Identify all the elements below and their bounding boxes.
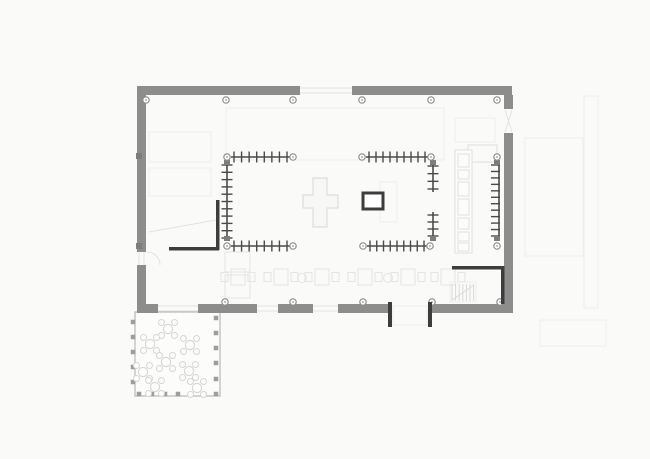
terrace-chair (157, 353, 163, 359)
outer-wall (137, 86, 300, 95)
outer-wall (137, 265, 146, 313)
terrace-chair (201, 392, 207, 398)
terrace-chair (146, 391, 152, 397)
terrace-chair (170, 353, 176, 359)
terrace-post (214, 316, 219, 321)
terrace-table (150, 382, 159, 391)
column-center-dot (496, 156, 498, 158)
terrace-post (214, 346, 219, 351)
wall-block (224, 236, 230, 241)
terrace-post (176, 392, 181, 397)
column-center-dot (225, 99, 227, 101)
terrace-chair (180, 362, 186, 368)
terrace-chair (188, 379, 194, 385)
column-center-dot (224, 301, 226, 303)
terrace-table (163, 324, 172, 333)
terrace-table (184, 366, 193, 375)
outer-wall (278, 304, 313, 313)
outer-wall (198, 304, 257, 313)
terrace-chair (159, 320, 165, 326)
terrace-chair (157, 366, 163, 372)
interior-wall (388, 302, 392, 327)
drawing-background (0, 0, 650, 459)
terrace-chair (194, 336, 200, 342)
outer-wall (352, 86, 512, 95)
column-center-dot (226, 156, 228, 158)
terrace-chair (188, 392, 194, 398)
terrace-chair (181, 349, 187, 355)
terrace-chair (134, 376, 140, 382)
page-background (0, 0, 650, 459)
terrace-chair (193, 362, 199, 368)
terrace-post (214, 331, 219, 336)
column-center-dot (361, 99, 363, 101)
terrace-post (131, 320, 136, 325)
terrace-post (137, 392, 142, 397)
terrace-post (214, 392, 219, 397)
terrace-chair (181, 336, 187, 342)
column-center-dot (496, 245, 498, 247)
interior-wall (428, 302, 432, 327)
outer-wall (504, 133, 513, 313)
column-center-dot (362, 245, 364, 247)
terrace-chair (159, 391, 165, 397)
outer-wall (504, 95, 513, 109)
terrace-post (131, 335, 136, 340)
terrace-table (145, 339, 154, 348)
terrace-chair (154, 335, 160, 341)
stove (363, 193, 383, 209)
column-center-dot (496, 99, 498, 101)
interior-wall (452, 266, 504, 270)
wall-block (136, 153, 142, 159)
terrace-chair (170, 366, 176, 372)
terrace-chair (194, 349, 200, 355)
terrace-table (138, 367, 147, 376)
terrace-table (192, 383, 201, 392)
outer-wall (137, 86, 146, 252)
column-center-dot (430, 99, 432, 101)
column-center-dot (292, 99, 294, 101)
terrace-chair (201, 379, 207, 385)
column-center-dot (430, 156, 432, 158)
terrace-chair (134, 363, 140, 369)
terrace-chair (172, 320, 178, 326)
wall-block (430, 236, 436, 241)
column-center-dot (362, 301, 364, 303)
terrace-post (214, 377, 219, 382)
floor-plan-drawing (0, 0, 650, 459)
terrace-chair (147, 363, 153, 369)
column-center-dot (145, 99, 147, 101)
wall-block (136, 243, 142, 249)
interior-wall (216, 200, 220, 250)
interior-wall (501, 266, 505, 304)
column-center-dot (292, 156, 294, 158)
terrace-table (161, 357, 170, 366)
terrace-post (214, 361, 219, 366)
wall-block (494, 236, 500, 241)
terrace-chair (172, 333, 178, 339)
outer-wall (146, 304, 158, 313)
terrace-chair (146, 378, 152, 384)
column-center-dot (226, 245, 228, 247)
column-center-dot (292, 245, 294, 247)
terrace-post (131, 350, 136, 355)
interior-wall (169, 247, 219, 251)
column-center-dot (361, 156, 363, 158)
terrace-chair (141, 335, 147, 341)
terrace-chair (180, 375, 186, 381)
terrace-table (185, 340, 194, 349)
column-center-dot (292, 301, 294, 303)
column-center-dot (499, 301, 501, 303)
column-center-dot (429, 245, 431, 247)
terrace-chair (141, 348, 147, 354)
terrace-chair (159, 378, 165, 384)
